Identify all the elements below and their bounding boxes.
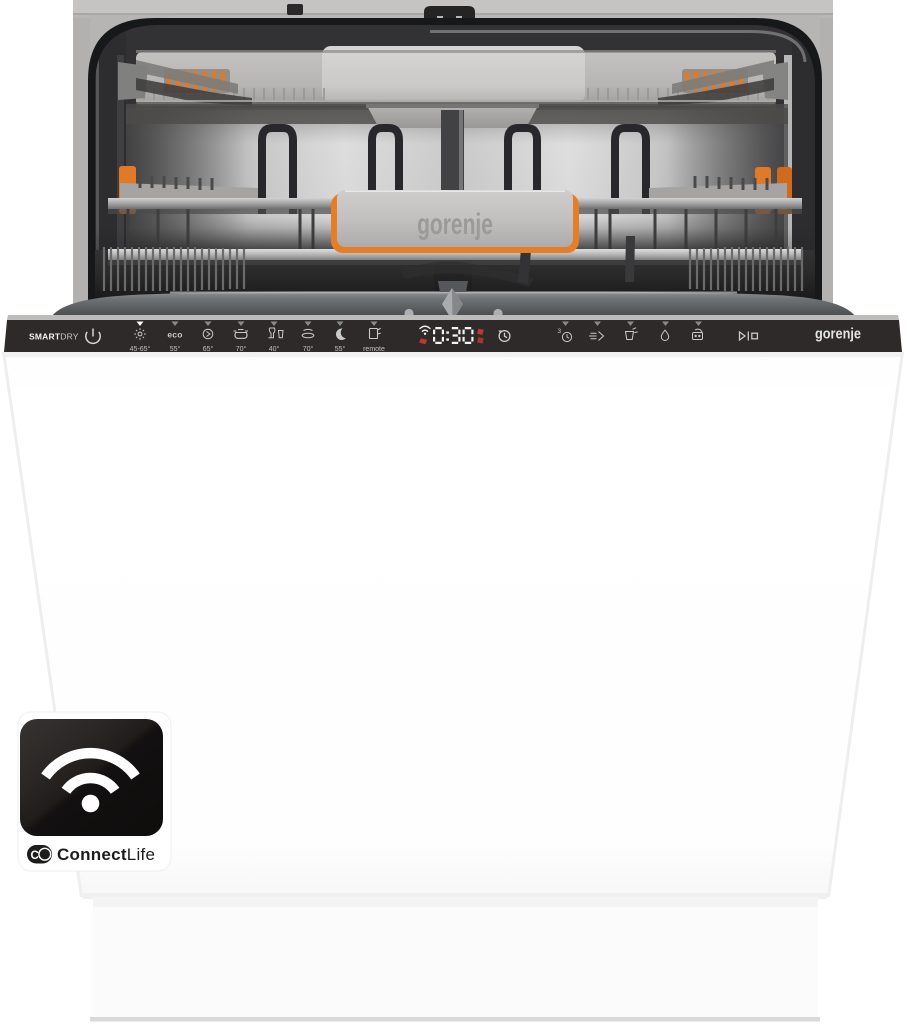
svg-text:70°: 70°	[236, 345, 247, 353]
svg-text:55°: 55°	[335, 345, 346, 353]
svg-text:45-65°: 45-65°	[130, 345, 151, 353]
svg-text:3: 3	[558, 328, 562, 335]
svg-text:65°: 65°	[203, 345, 214, 353]
svg-text:ConnectLife: ConnectLife	[57, 845, 155, 864]
svg-text:eco: eco	[167, 330, 182, 340]
svg-text:70°: 70°	[303, 345, 314, 353]
svg-text:55°: 55°	[170, 345, 181, 353]
svg-text:C: C	[31, 850, 39, 862]
svg-text:SMARTDRY: SMARTDRY	[29, 332, 79, 342]
svg-text:40°: 40°	[269, 345, 280, 353]
svg-text:gorenje: gorenje	[815, 324, 861, 341]
svg-text:remote: remote	[363, 346, 385, 353]
svg-text:gorenje: gorenje	[417, 209, 493, 241]
